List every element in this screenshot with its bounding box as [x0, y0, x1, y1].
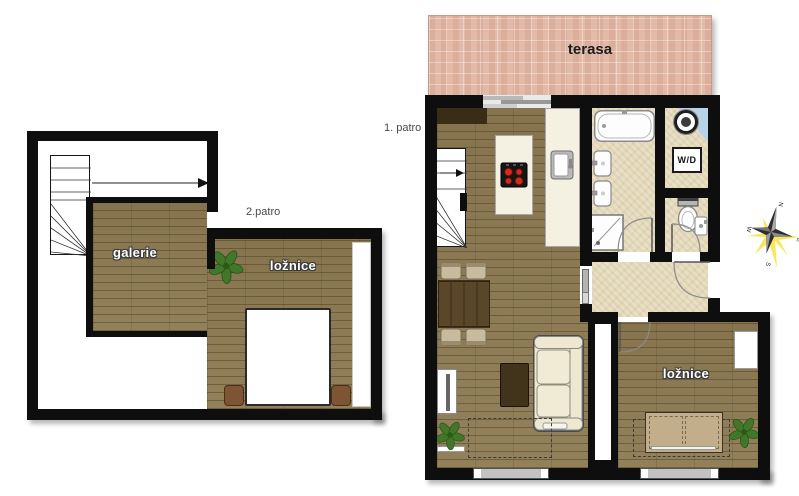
compass-letter-n: N [777, 202, 784, 207]
stair-direction-arrow [90, 176, 210, 190]
galerie-floor [93, 203, 207, 331]
wall [580, 108, 592, 262]
compass-letter-w: W [744, 226, 751, 233]
sink-icon [590, 150, 612, 177]
wall [371, 228, 382, 420]
window-icon [473, 468, 549, 479]
wall [580, 252, 618, 262]
compass-letter-s: S [764, 261, 771, 266]
washing-machine-icon [672, 108, 700, 136]
room-label-loznice-f1: ložnice [641, 366, 731, 381]
nightstand-left [224, 385, 244, 406]
sliding-door [483, 95, 551, 108]
room-label-terasa: terasa [515, 41, 665, 58]
wall [655, 108, 665, 252]
wall [425, 95, 437, 480]
compass-rose-icon: N E S W [741, 196, 799, 272]
plant-icon [726, 414, 762, 450]
ceiling-opening-outline [468, 418, 552, 458]
pocket-door-panel [582, 292, 589, 304]
bed-footboard [651, 446, 716, 450]
door-arc-icon [616, 216, 654, 254]
kitchen-sink-icon [550, 150, 574, 180]
wall [27, 131, 38, 420]
wall [86, 331, 207, 337]
door-arc-icon [668, 220, 704, 256]
wardrobe [734, 331, 758, 369]
room-label-galerie: galerie [80, 245, 190, 260]
plant-icon [433, 418, 467, 452]
wall [86, 197, 207, 203]
bathtub-icon [594, 110, 655, 142]
wall [708, 95, 720, 262]
coffee-table [500, 363, 529, 407]
tv-stand [437, 369, 457, 414]
stove-icon [500, 162, 528, 188]
dining-set-icon [438, 262, 490, 346]
wall-cavity [595, 324, 611, 460]
stairs-treads [51, 156, 91, 256]
washer-dryer-label: W/D [672, 147, 702, 173]
pocket-door-panel [582, 269, 589, 293]
sliding-door-panel [483, 104, 517, 108]
bed-mattress [649, 416, 683, 449]
kitchen-counter-dark [437, 108, 487, 124]
compass-letter-e: E [795, 237, 799, 242]
floor-label-1patro: 1. patro [384, 122, 421, 134]
nightstand-right [331, 385, 351, 406]
bed-mattress [685, 416, 719, 449]
stairs-icon [433, 148, 466, 247]
stairs-treads [434, 149, 467, 248]
wall [425, 95, 720, 108]
wall [207, 239, 215, 269]
wall [648, 312, 720, 322]
wall [27, 409, 382, 420]
wall [655, 188, 708, 198]
tv-screen [446, 374, 450, 411]
sink-icon [590, 180, 612, 207]
window-icon [640, 468, 719, 479]
floor-plan-canvas: galerie ložnice 2.patro terasa [0, 0, 799, 496]
wall [758, 312, 770, 480]
wall [86, 197, 93, 337]
stairs-icon [50, 155, 90, 255]
bed-double-f1 [645, 412, 723, 453]
floor-label-2patro: 2.patro [246, 206, 280, 218]
bedroom2-side-strip [352, 242, 371, 407]
room-label-loznice-f2: ložnice [248, 258, 338, 273]
wall [207, 131, 218, 212]
door-arc-icon [618, 320, 652, 354]
bed-double-f2 [245, 308, 331, 406]
wall [207, 228, 382, 239]
wall [27, 131, 218, 141]
door-arc-icon [672, 260, 712, 300]
